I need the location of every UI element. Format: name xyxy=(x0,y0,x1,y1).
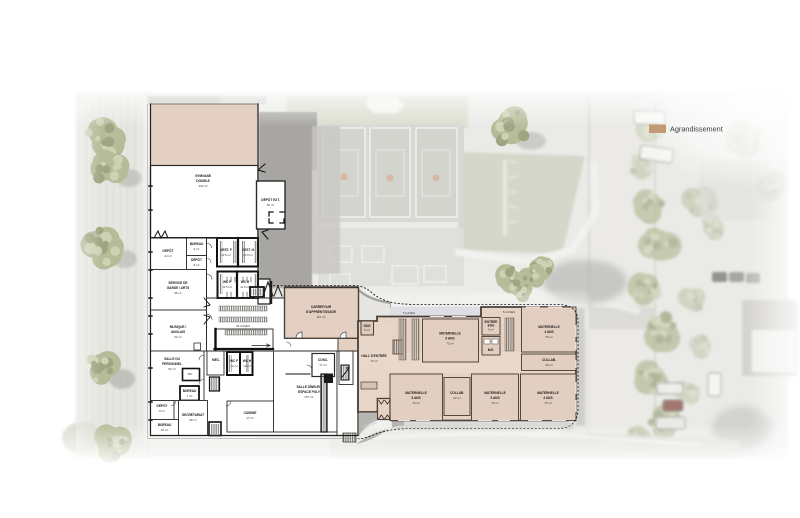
svg-text:D'APPRENTISSAGE: D'APPRENTISSAGE xyxy=(306,310,337,314)
svg-text:11.5 m²: 11.5 m² xyxy=(240,285,250,289)
svg-text:Agrandissement: Agrandissement xyxy=(670,125,723,134)
svg-text:VEST. H: VEST. H xyxy=(242,248,255,252)
svg-text:75 m²: 75 m² xyxy=(446,342,453,346)
svg-text:5 CASES: 5 CASES xyxy=(403,311,415,315)
svg-text:9 m²: 9 m² xyxy=(194,247,200,251)
svg-text:MATERNELLE: MATERNELLE xyxy=(537,391,559,395)
svg-text:62 m²: 62 m² xyxy=(174,335,181,339)
svg-text:MATERNELLE: MATERNELLE xyxy=(484,391,506,395)
svg-text:432 m²: 432 m² xyxy=(199,184,208,188)
svg-text:17 m²: 17 m² xyxy=(246,416,253,420)
svg-text:17 m²: 17 m² xyxy=(319,363,326,367)
svg-text:MATERNELLE: MATERNELLE xyxy=(405,391,427,395)
svg-text:5 ANS: 5 ANS xyxy=(445,337,455,341)
svg-text:SERVICE DE: SERVICE DE xyxy=(168,281,188,285)
svg-text:HALL D'ENTRÉE: HALL D'ENTRÉE xyxy=(361,353,387,358)
svg-text:5 CASES: 5 CASES xyxy=(503,310,515,314)
svg-text:CUISINE: CUISINE xyxy=(244,411,258,415)
svg-text:BUREAU: BUREAU xyxy=(158,423,172,427)
svg-text:36 m²: 36 m² xyxy=(267,203,274,207)
svg-text:13.5 m²: 13.5 m² xyxy=(221,253,231,257)
svg-text:COLLAB.: COLLAB. xyxy=(450,391,464,395)
svg-text:22 m²: 22 m² xyxy=(164,254,171,258)
svg-text:8 m²: 8 m² xyxy=(194,263,200,267)
svg-text:VEST. F: VEST. F xyxy=(220,248,232,252)
svg-text:WC H: WC H xyxy=(243,359,252,363)
svg-text:18 CASES: 18 CASES xyxy=(236,324,250,328)
svg-text:5 ANS: 5 ANS xyxy=(411,396,421,400)
svg-text:5 ANS: 5 ANS xyxy=(490,396,500,400)
svg-text:SALLE DÎNEUR /: SALLE DÎNEUR / xyxy=(296,384,321,389)
svg-text:110 m²: 110 m² xyxy=(317,315,326,319)
svg-text:MUSIQUE /: MUSIQUE / xyxy=(170,325,187,329)
svg-text:GYMNASE: GYMNASE xyxy=(195,174,212,178)
svg-text:15 m²: 15 m² xyxy=(161,428,168,432)
svg-text:DÉPÔT: DÉPÔT xyxy=(163,248,174,253)
svg-text:PERSONNEL: PERSONNEL xyxy=(162,362,182,366)
svg-text:8 m²: 8 m² xyxy=(159,409,165,413)
svg-text:DÉPÔT: DÉPÔT xyxy=(191,257,202,262)
svg-text:COLLAB.: COLLAB. xyxy=(542,358,556,362)
svg-text:WC H: WC H xyxy=(241,280,250,284)
svg-text:5 m²: 5 m² xyxy=(364,328,370,332)
svg-text:MATERNELLE: MATERNELLE xyxy=(538,325,560,329)
svg-text:SECRÉTARIAT: SECRÉTARIAT xyxy=(182,412,204,417)
svg-text:BUREAU: BUREAU xyxy=(190,242,204,246)
svg-text:ESPACE POLY: ESPACE POLY xyxy=(298,390,321,394)
svg-text:4 ANS: 4 ANS xyxy=(544,330,554,334)
svg-text:22 m²: 22 m² xyxy=(453,396,460,400)
svg-text:MATERNELLE: MATERNELLE xyxy=(439,332,461,336)
svg-text:DOUBLE: DOUBLE xyxy=(196,179,210,183)
svg-text:50 m²: 50 m² xyxy=(168,367,175,371)
svg-text:9 m²: 9 m² xyxy=(488,328,494,332)
svg-text:CARREFOUR: CARREFOUR xyxy=(311,305,332,309)
svg-text:28 m²: 28 m² xyxy=(189,418,196,422)
svg-text:DÉPÔT EXT.: DÉPÔT EXT. xyxy=(261,197,280,202)
svg-text:75 m²: 75 m² xyxy=(545,335,552,339)
svg-text:GARDE / ARTS: GARDE / ARTS xyxy=(167,286,190,290)
svg-text:11.5 m²: 11.5 m² xyxy=(222,285,232,289)
svg-text:12 m²: 12 m² xyxy=(243,364,250,368)
svg-text:BUREAU: BUREAU xyxy=(183,389,197,393)
svg-text:207 m²: 207 m² xyxy=(305,395,314,399)
svg-text:M.E.: M.E. xyxy=(488,348,495,352)
svg-text:7 m²: 7 m² xyxy=(187,394,193,398)
svg-text:DÉPÔT: DÉPÔT xyxy=(157,403,168,408)
svg-text:SALLE DU: SALLE DU xyxy=(164,357,181,361)
svg-text:4 ANS: 4 ANS xyxy=(543,396,553,400)
svg-text:95 m²: 95 m² xyxy=(174,291,181,295)
svg-text:MEC.: MEC. xyxy=(212,358,220,362)
svg-text:36 m²: 36 m² xyxy=(545,363,552,367)
svg-text:75 m²: 75 m² xyxy=(412,401,419,405)
svg-text:12 m²: 12 m² xyxy=(230,364,237,368)
svg-text:CONC.: CONC. xyxy=(318,358,328,362)
svg-text:WC: WC xyxy=(188,372,193,376)
svg-text:13.5 m²: 13.5 m² xyxy=(243,253,253,257)
svg-text:75 m²: 75 m² xyxy=(491,401,498,405)
svg-text:72 m²: 72 m² xyxy=(370,359,377,363)
svg-text:ANGLAIS: ANGLAIS xyxy=(171,330,186,334)
svg-text:WC F: WC F xyxy=(230,359,238,363)
svg-text:75 m²: 75 m² xyxy=(544,401,551,405)
svg-text:WC F: WC F xyxy=(223,280,231,284)
